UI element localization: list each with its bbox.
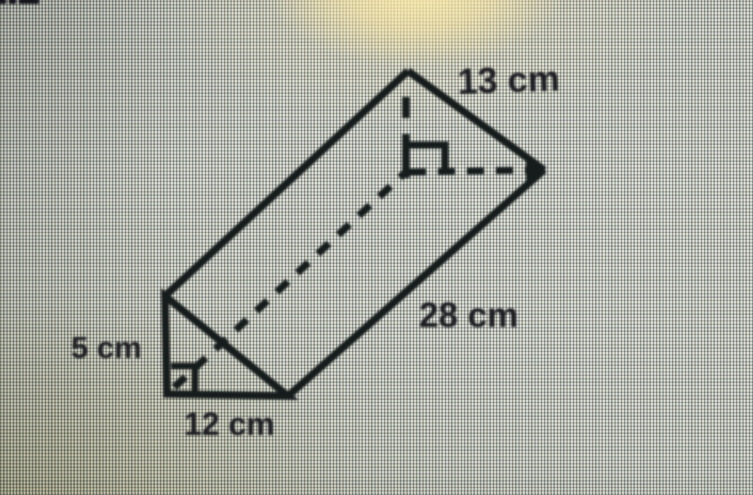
svg-text:28 cm: 28 cm [419, 296, 518, 335]
svg-text:5 cm: 5 cm [71, 330, 142, 365]
svg-text:12 cm: 12 cm [184, 406, 275, 442]
svg-text:13 cm: 13 cm [457, 57, 560, 102]
